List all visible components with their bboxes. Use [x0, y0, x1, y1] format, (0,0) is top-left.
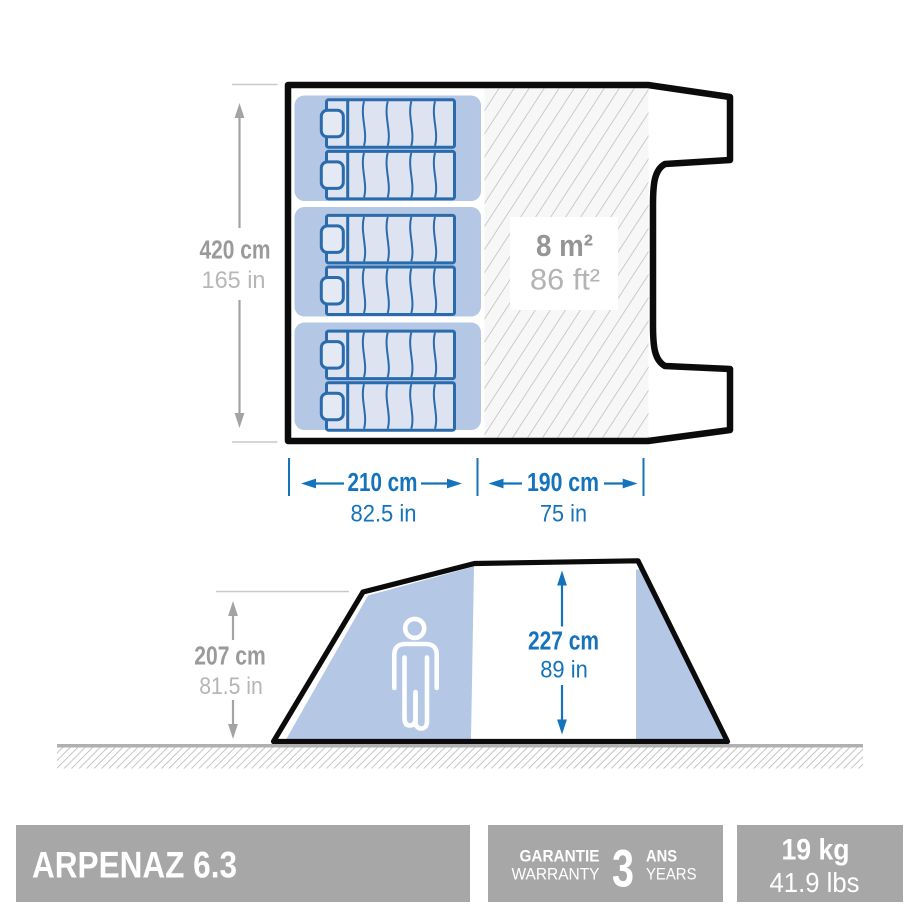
svg-text:8 m²: 8 m²: [536, 228, 593, 263]
svg-text:19 kg: 19 kg: [782, 834, 850, 867]
svg-text:ARPENAZ 6.3: ARPENAZ 6.3: [32, 845, 237, 886]
svg-text:420 cm: 420 cm: [200, 237, 271, 265]
svg-text:190 cm: 190 cm: [527, 469, 599, 497]
svg-text:75 in: 75 in: [540, 501, 587, 528]
svg-text:81.5 in: 81.5 in: [199, 673, 263, 700]
svg-text:227 cm: 227 cm: [528, 628, 599, 656]
svg-text:89 in: 89 in: [540, 657, 588, 684]
svg-text:165 in: 165 in: [202, 267, 266, 294]
svg-text:41.9 lbs: 41.9 lbs: [770, 867, 860, 898]
svg-text:GARANTIE: GARANTIE: [520, 848, 600, 866]
svg-text:3: 3: [612, 840, 634, 899]
svg-text:82.5 in: 82.5 in: [351, 501, 417, 528]
svg-text:ANS: ANS: [646, 848, 677, 866]
svg-text:207 cm: 207 cm: [194, 643, 266, 671]
svg-text:210 cm: 210 cm: [348, 469, 418, 497]
svg-text:WARRANTY: WARRANTY: [512, 866, 600, 884]
svg-text:86 ft²: 86 ft²: [530, 264, 600, 297]
svg-text:YEARS: YEARS: [646, 866, 697, 884]
